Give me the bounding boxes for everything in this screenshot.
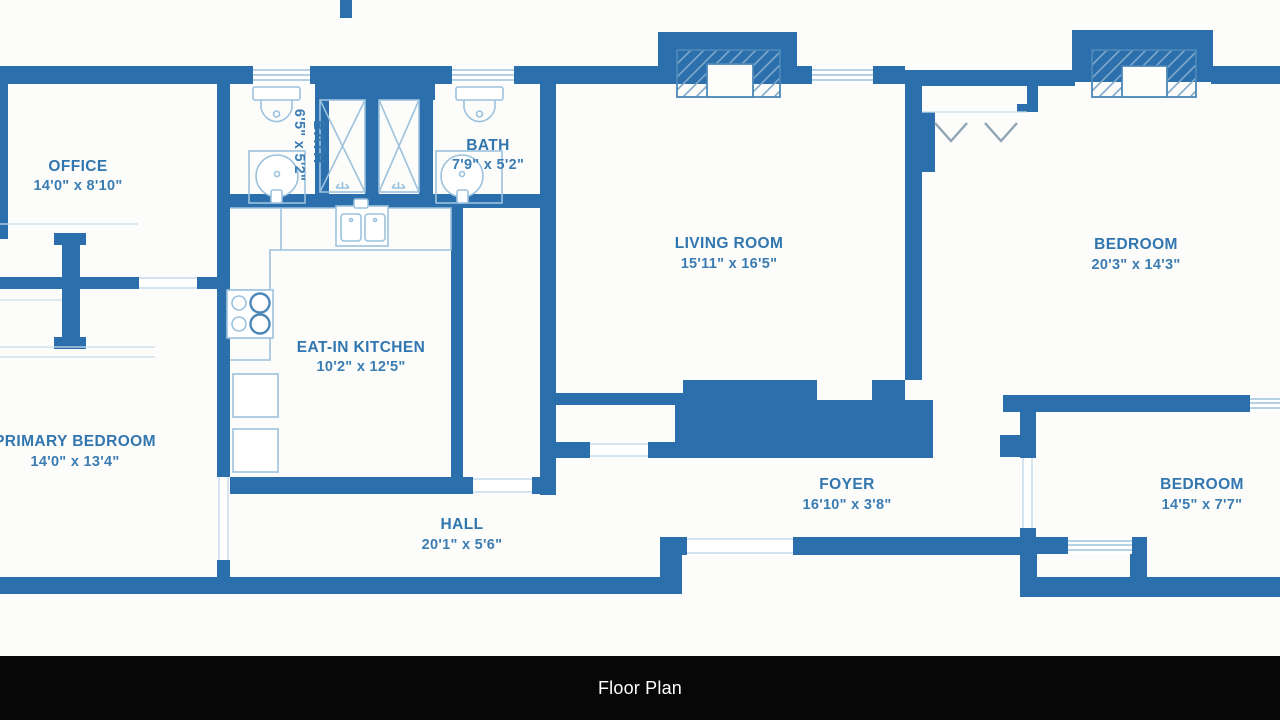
svg-text:PRIMARY BEDROOM: PRIMARY BEDROOM bbox=[0, 433, 156, 450]
floor-plan-page: OFFICE 14'0" x 8'10" BATH 6'5" x 5'2" BA… bbox=[0, 0, 1280, 720]
room-label-primary-bedroom: PRIMARY BEDROOM 14'0" x 13'4" bbox=[0, 433, 156, 470]
caption-label: Floor Plan bbox=[598, 678, 682, 699]
svg-text:20'3" x 14'3": 20'3" x 14'3" bbox=[1091, 257, 1180, 273]
floor-plan-image: OFFICE 14'0" x 8'10" BATH 6'5" x 5'2" BA… bbox=[0, 0, 1280, 656]
refrigerator-icon bbox=[233, 374, 278, 472]
svg-text:BATH: BATH bbox=[466, 137, 510, 154]
room-label-bedroom-bottom: BEDROOM 14'5" x 7'7" bbox=[1160, 476, 1244, 513]
svg-text:14'5" x 7'7": 14'5" x 7'7" bbox=[1162, 497, 1243, 513]
svg-text:14'0" x 13'4": 14'0" x 13'4" bbox=[30, 454, 119, 470]
kitchen-sink-icon bbox=[336, 199, 388, 246]
svg-text:FOYER: FOYER bbox=[819, 476, 874, 493]
svg-text:6'5" x 5'2": 6'5" x 5'2" bbox=[291, 109, 307, 181]
room-label-living-room: LIVING ROOM 15'11" x 16'5" bbox=[675, 235, 784, 272]
svg-text:EAT-IN KITCHEN: EAT-IN KITCHEN bbox=[297, 339, 425, 356]
svg-text:OFFICE: OFFICE bbox=[48, 158, 107, 175]
svg-text:7'9" x 5'2": 7'9" x 5'2" bbox=[452, 157, 524, 173]
stove-icon bbox=[227, 290, 273, 338]
closet-chevron-icon bbox=[922, 112, 1027, 141]
svg-text:BEDROOM: BEDROOM bbox=[1094, 236, 1178, 253]
svg-text:16'10" x 3'8": 16'10" x 3'8" bbox=[802, 497, 891, 513]
room-label-bedroom-right: BEDROOM 20'3" x 14'3" bbox=[1091, 236, 1180, 273]
svg-text:LIVING ROOM: LIVING ROOM bbox=[675, 235, 784, 252]
svg-text:20'1" x 5'6": 20'1" x 5'6" bbox=[422, 537, 503, 553]
svg-text:HALL: HALL bbox=[441, 516, 484, 533]
room-label-office: OFFICE 14'0" x 8'10" bbox=[33, 158, 122, 194]
room-label-hall: HALL 20'1" x 5'6" bbox=[422, 516, 503, 553]
svg-text:BATH: BATH bbox=[310, 120, 327, 164]
svg-text:10'2" x 12'5": 10'2" x 12'5" bbox=[316, 359, 405, 375]
room-label-foyer: FOYER 16'10" x 3'8" bbox=[802, 476, 891, 513]
walls bbox=[0, 0, 1280, 597]
svg-text:15'11" x 16'5": 15'11" x 16'5" bbox=[681, 256, 778, 272]
svg-text:BEDROOM: BEDROOM bbox=[1160, 476, 1244, 493]
room-label-kitchen: EAT-IN KITCHEN 10'2" x 12'5" bbox=[297, 339, 425, 375]
caption-bar: Floor Plan bbox=[0, 656, 1280, 720]
svg-text:14'0" x 8'10": 14'0" x 8'10" bbox=[33, 178, 122, 194]
